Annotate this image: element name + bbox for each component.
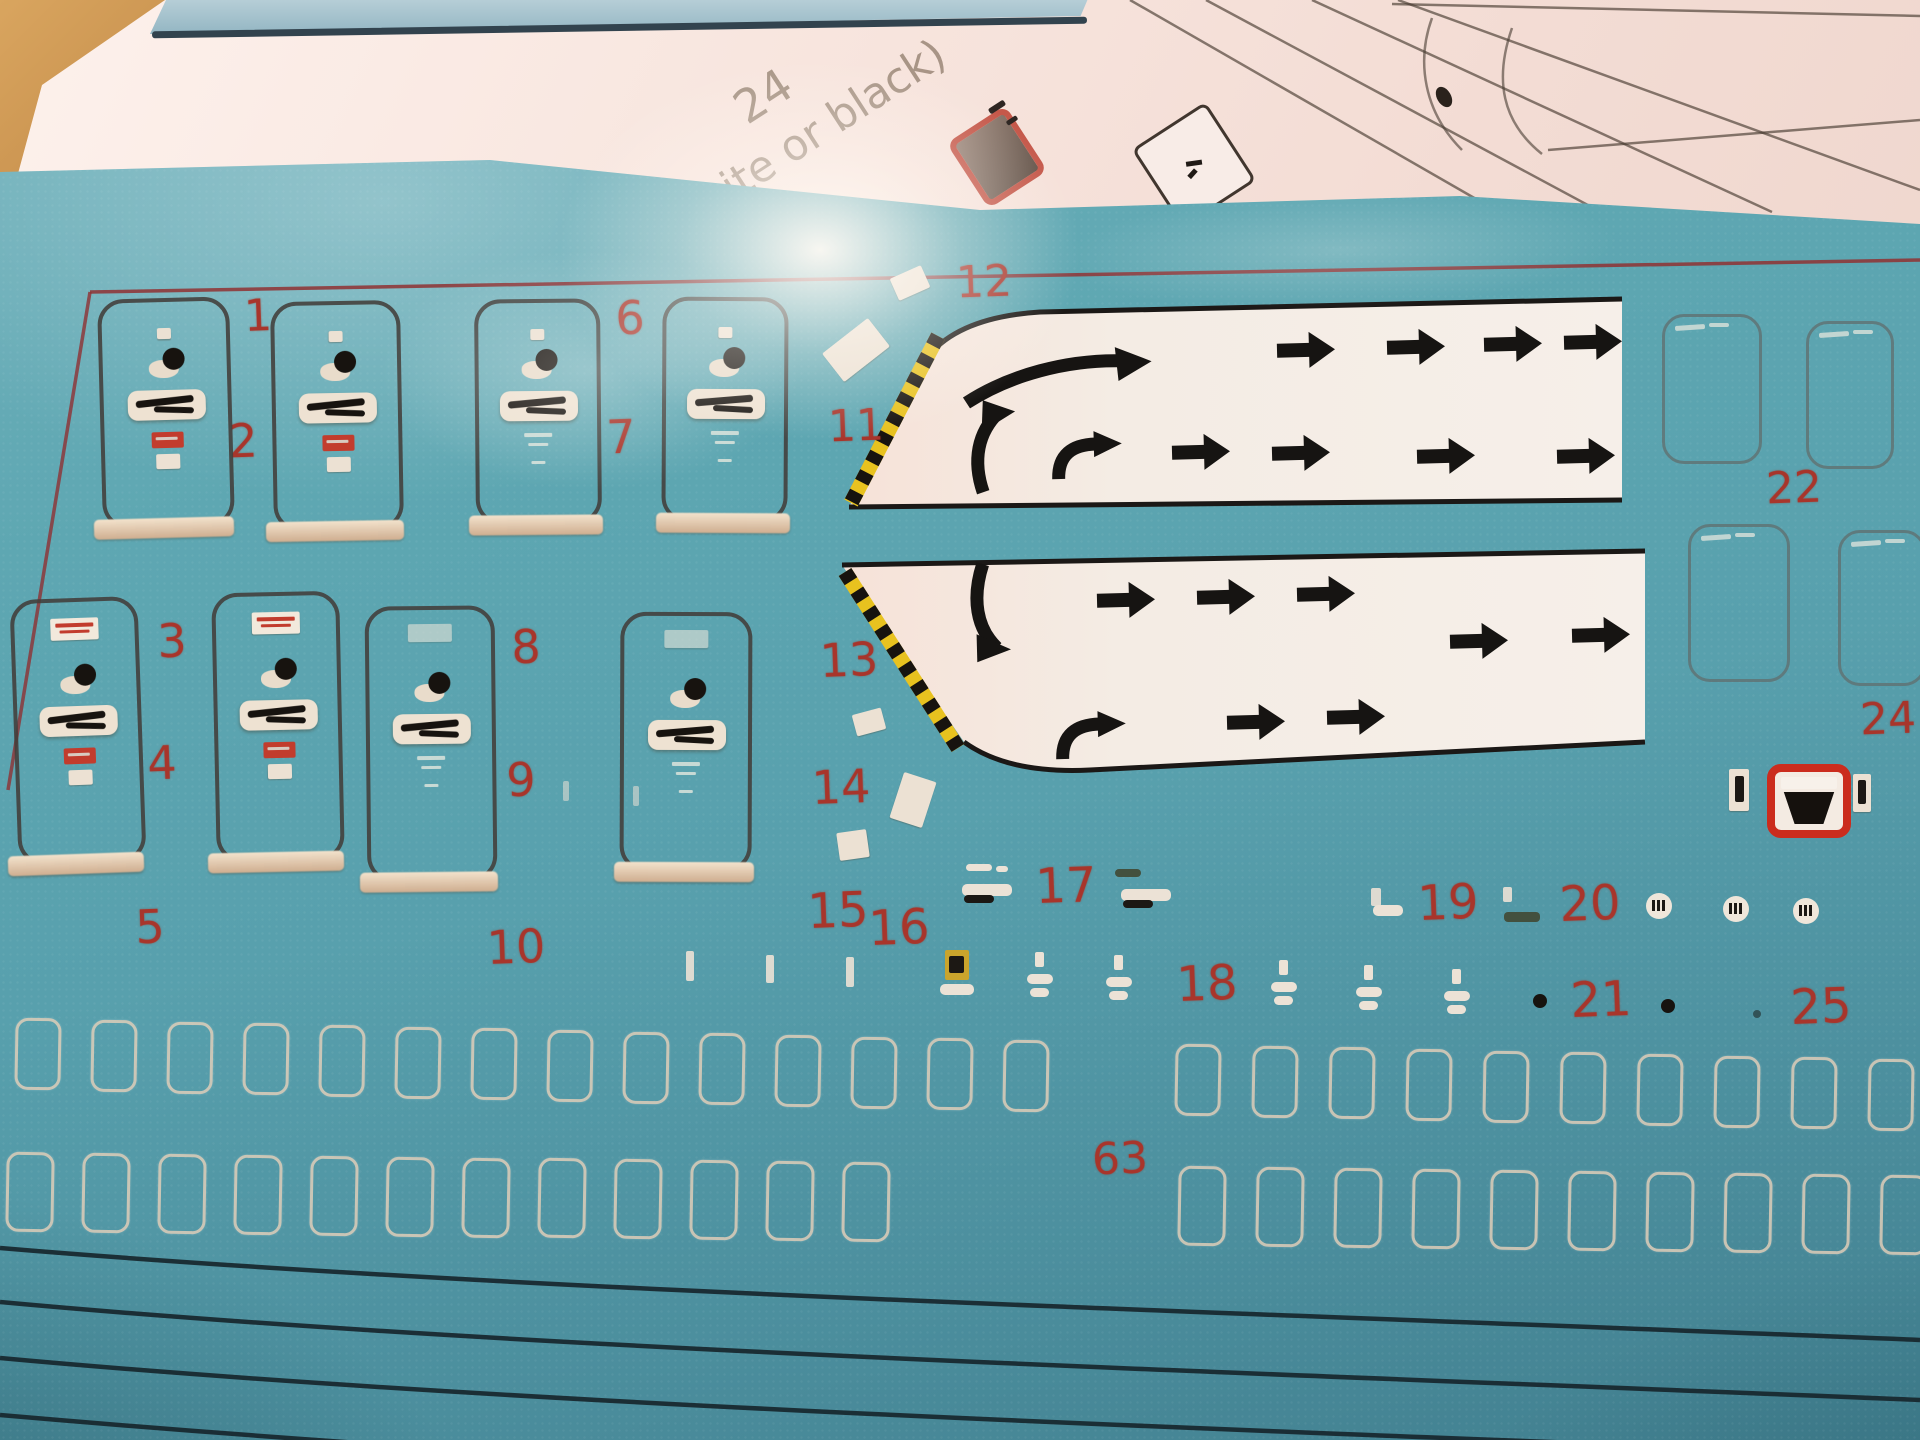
door-window-dot xyxy=(723,347,745,369)
window-outline-decal xyxy=(1645,1171,1694,1252)
placard-hatch xyxy=(1657,900,1660,911)
part-number: 18 xyxy=(1176,955,1239,1013)
part-number: 19 xyxy=(1417,874,1480,932)
label-text-line xyxy=(261,624,291,628)
window-outline-decal xyxy=(850,1036,897,1109)
decal-door-outline xyxy=(97,296,235,529)
window-outline-decal xyxy=(622,1031,669,1104)
window-outline-decal xyxy=(1177,1166,1226,1247)
window-outline-decal xyxy=(1255,1167,1304,1248)
door-handle-art xyxy=(299,392,378,423)
window-outline-decal xyxy=(1489,1169,1538,1250)
chip-line xyxy=(326,440,348,443)
stencil-bar xyxy=(1447,1005,1466,1014)
label-text-line xyxy=(55,622,93,627)
label-text-line xyxy=(257,617,295,622)
window-outline-decal xyxy=(1411,1169,1460,1250)
white-instruction-chip xyxy=(68,770,93,786)
decal-door-outline xyxy=(620,612,753,872)
nav-light-dot-decal xyxy=(1753,1010,1761,1018)
escape-slide-band-13 xyxy=(842,551,1645,770)
door-handle-art xyxy=(648,720,726,750)
window-outline-decal xyxy=(841,1162,890,1243)
window-outline-decal xyxy=(394,1026,441,1099)
placard-hatch xyxy=(1662,900,1665,911)
pitot-decal-group xyxy=(962,880,1012,906)
window-outline-decal xyxy=(1174,1043,1221,1116)
faint-text-line xyxy=(528,443,548,446)
window-outline-decal xyxy=(1801,1173,1850,1254)
window-outline-decal xyxy=(242,1023,289,1096)
window-outline-decal xyxy=(1636,1054,1683,1127)
window-outline-decal xyxy=(765,1161,814,1242)
handle-bar xyxy=(419,730,459,738)
decal-door-outline xyxy=(661,297,788,524)
red-instruction-chip xyxy=(322,435,354,452)
door-top-mark xyxy=(1709,323,1729,327)
nav-light-dot-decal xyxy=(1533,994,1547,1008)
window-outline-decal xyxy=(546,1030,593,1103)
door-handle-art xyxy=(687,389,765,419)
fuselage-outline-line xyxy=(1398,0,1920,190)
label-text-line xyxy=(59,630,89,634)
part-number: 8 xyxy=(510,620,541,675)
window-outline-decal xyxy=(81,1153,130,1234)
faint-text-line xyxy=(718,459,732,462)
tick-mark-decal xyxy=(846,957,854,987)
door-top-mark xyxy=(1735,533,1755,537)
faint-text-line xyxy=(672,762,700,766)
part-number: 21 xyxy=(1570,971,1633,1029)
window-outline-decal xyxy=(1002,1040,1049,1113)
handle-bar xyxy=(674,736,714,744)
window-outline-decal xyxy=(1723,1172,1772,1253)
decal24-side-tick xyxy=(1729,769,1749,811)
stencil-bar xyxy=(1030,988,1049,997)
door-window-dot xyxy=(684,678,706,700)
white-instruction-chip xyxy=(156,454,180,470)
handle-bar xyxy=(154,406,194,413)
part-number: 25 xyxy=(1790,978,1853,1036)
window-outline-decal xyxy=(1333,1168,1382,1249)
tiny-arrow-icon xyxy=(1186,160,1203,167)
door-handle-art xyxy=(239,699,318,731)
window-outline-decal xyxy=(157,1153,206,1234)
placard-base xyxy=(940,984,974,995)
tick-mark-decal xyxy=(766,955,774,983)
olive-dash xyxy=(1115,869,1141,877)
door-sill-decal xyxy=(266,520,404,542)
stencil-bar xyxy=(1359,1001,1378,1010)
white-instruction-chip xyxy=(327,457,351,472)
pitot-decal-group xyxy=(1121,885,1171,911)
faint-text-line xyxy=(417,756,445,760)
black-underbar xyxy=(1123,900,1153,908)
emergency-exit-label xyxy=(252,612,300,635)
window-outline-decal xyxy=(5,1152,54,1233)
door-top-mark xyxy=(1851,540,1881,547)
handle-bar xyxy=(713,405,753,413)
door-top-mark xyxy=(1885,539,1905,543)
decal-door-outline xyxy=(9,596,146,866)
small-stencil-decal xyxy=(1027,952,1053,1000)
placard-hatch xyxy=(1652,900,1655,911)
tick-mark-decal xyxy=(633,786,639,806)
part-number: 20 xyxy=(1559,875,1622,933)
door-sill-decal xyxy=(656,513,790,534)
door-sill-decal xyxy=(360,871,498,892)
window-outline-decal xyxy=(1482,1050,1529,1123)
part-number: 16 xyxy=(868,899,931,957)
tick-mark-decal xyxy=(686,951,694,981)
door-sill-decal xyxy=(208,851,344,874)
faint-text-line xyxy=(679,790,693,793)
door-sill-decal xyxy=(94,516,234,540)
nav-light-dot-decal xyxy=(1661,999,1675,1013)
placard-hatch xyxy=(1809,905,1812,916)
stencil-bar xyxy=(1356,987,1382,997)
handle-bar xyxy=(325,409,365,416)
window-dot xyxy=(1432,84,1455,110)
tick-bar xyxy=(1858,780,1866,804)
placard-hatch xyxy=(1804,905,1807,916)
tick-mark-decal xyxy=(1371,888,1381,906)
window-outline-decal xyxy=(318,1025,365,1098)
part-number: 10 xyxy=(486,919,546,975)
round-placard-decal xyxy=(1646,893,1672,919)
stencil-tick xyxy=(1452,969,1461,984)
decal-door-outline xyxy=(365,605,498,882)
door-window-dot xyxy=(535,349,557,371)
loose-white-chip xyxy=(836,829,870,861)
door-sill-decal xyxy=(469,514,603,535)
part-number: 15 xyxy=(807,882,870,940)
window-outline-decal xyxy=(1328,1047,1375,1120)
part-number: 3 xyxy=(156,614,187,669)
window-outline-decal xyxy=(1405,1049,1452,1122)
part-number: 11 xyxy=(827,400,885,453)
door-handle-art xyxy=(393,714,471,745)
decal-door-outline xyxy=(1838,530,1920,686)
white-instruction-chip xyxy=(268,764,292,779)
door-placard xyxy=(408,624,452,642)
door-handle-art xyxy=(39,705,118,738)
tick-bar xyxy=(1735,776,1744,802)
faint-text-line xyxy=(524,433,552,437)
part-number: 5 xyxy=(134,900,165,955)
window-outline-decal xyxy=(1867,1059,1914,1132)
part-number: 17 xyxy=(1035,857,1098,915)
emergency-exit-label xyxy=(50,617,99,641)
chip-line xyxy=(156,437,178,441)
door-sill-decal xyxy=(614,862,754,882)
handle-bar xyxy=(266,716,306,723)
decal24-side-tick xyxy=(1853,774,1871,812)
red-instruction-chip xyxy=(263,742,295,759)
placard-hatch xyxy=(1739,903,1742,914)
door-chip xyxy=(718,327,732,338)
window-outline-decal xyxy=(774,1035,821,1108)
stencil-bar xyxy=(1027,974,1053,984)
handle-bar xyxy=(526,407,566,415)
window-outline-decal xyxy=(1567,1170,1616,1251)
door-handle-art xyxy=(500,391,578,422)
small-stencil-decal xyxy=(1271,960,1297,1008)
window-outline-decal xyxy=(1559,1052,1606,1125)
door-window-dot xyxy=(428,672,450,694)
faint-text-line xyxy=(424,784,438,787)
part-number: 24 xyxy=(1859,693,1917,746)
faint-text-line xyxy=(531,461,545,464)
tick-mark-decal xyxy=(563,781,569,801)
window-outline-decal xyxy=(233,1154,282,1235)
placard-hatch xyxy=(1734,903,1737,914)
door-top-mark xyxy=(1675,324,1705,331)
door-chip xyxy=(530,329,544,340)
faint-text-line xyxy=(711,431,739,435)
window-outline-decal xyxy=(309,1155,358,1236)
decal-sheet: 1234567891011121314151617181920212224256… xyxy=(0,0,1920,1440)
window-outline-decal xyxy=(1790,1057,1837,1130)
faint-text-line xyxy=(715,441,735,444)
small-dash xyxy=(996,866,1008,872)
cheatline-stripe xyxy=(0,1358,1920,1440)
door-window-dot xyxy=(334,351,356,373)
stencil-bar xyxy=(1109,991,1128,1000)
door-handle-art xyxy=(127,389,206,421)
window-outline-decal xyxy=(90,1020,137,1093)
small-dash xyxy=(966,864,992,871)
window-outline-decal xyxy=(926,1038,973,1111)
tick-mark-decal xyxy=(1503,887,1512,902)
yellow-placard-decal xyxy=(940,950,974,996)
door-placard xyxy=(664,630,708,648)
window-outline-decal xyxy=(166,1021,213,1094)
part-number: 6 xyxy=(614,291,645,346)
window-outline-decal xyxy=(537,1158,586,1239)
chip-line xyxy=(68,753,90,757)
tiny-arrow-icon xyxy=(1187,168,1197,179)
stencil-bar xyxy=(1271,982,1297,992)
part-number: 22 xyxy=(1765,462,1823,515)
window-outline-decal xyxy=(14,1018,61,1091)
small-stencil-decal xyxy=(1444,969,1470,1017)
window-outline-decal xyxy=(1879,1174,1920,1255)
window-outline-decal xyxy=(613,1159,662,1240)
fuselage-outline-line xyxy=(1206,0,1625,225)
part-number: 63 xyxy=(1091,1133,1149,1186)
window-outline-decal xyxy=(385,1156,434,1237)
fuselage-outline-line xyxy=(1392,4,1920,16)
window-outline-decal xyxy=(1251,1045,1298,1118)
placard-hatch xyxy=(1729,903,1732,914)
handle-bar xyxy=(66,722,106,729)
decal-door-outline xyxy=(1662,314,1762,464)
part-number: 9 xyxy=(505,753,536,808)
decal-door-outline xyxy=(270,300,404,532)
door-window-dot xyxy=(275,658,297,680)
stencil-tick xyxy=(1035,952,1044,967)
part-number: 14 xyxy=(811,759,871,815)
stencil-tick xyxy=(1364,965,1373,980)
small-stencil-decal xyxy=(1356,965,1382,1013)
part-number: 7 xyxy=(605,410,636,465)
stencil-bar xyxy=(1444,991,1470,1001)
window-outline-decal xyxy=(461,1157,510,1238)
placard-hatch xyxy=(1799,905,1802,916)
door-top-mark xyxy=(1701,534,1731,541)
cheatline-stripe xyxy=(0,1302,1920,1400)
cheatline-stripe xyxy=(0,1415,860,1440)
nose-outline-curve xyxy=(1424,18,1462,150)
small-dash-decal xyxy=(1373,905,1403,916)
door-top-mark xyxy=(1819,331,1849,338)
faint-text-line xyxy=(421,766,441,769)
round-placard-decal xyxy=(1793,898,1819,924)
window-outline-decal xyxy=(698,1033,745,1106)
window-outline-decal xyxy=(689,1160,738,1241)
black-underbar xyxy=(964,895,994,903)
door-chip xyxy=(157,328,171,339)
door-top-mark xyxy=(1853,330,1873,334)
small-dash-decal xyxy=(1504,912,1540,922)
part-number: 4 xyxy=(146,736,177,791)
stencil-tick xyxy=(1114,955,1123,970)
red-instruction-chip xyxy=(64,747,97,764)
decal-door-outline xyxy=(211,591,345,864)
stencil-bar xyxy=(1106,977,1132,987)
photo-decal-sheet: { "scene": { "teal": "#58a0ad", "paper":… xyxy=(0,0,1920,1440)
stencil-tick xyxy=(1279,960,1288,975)
stencil-bar xyxy=(1274,996,1293,1005)
decal-door-outline xyxy=(474,298,602,525)
door-chip xyxy=(329,331,343,342)
placard-figure xyxy=(949,956,964,973)
decal24-topbar xyxy=(1781,777,1837,789)
apu-exhaust-decal xyxy=(1767,764,1851,838)
decal-door-outline xyxy=(1688,524,1790,682)
window-outline-decal xyxy=(1713,1055,1760,1128)
part-number: 13 xyxy=(819,632,879,688)
part-number: 1 xyxy=(243,290,273,342)
faint-text-line xyxy=(676,772,696,775)
door-window-dot xyxy=(74,663,97,686)
small-stencil-decal xyxy=(1106,955,1132,1003)
part-number: 12 xyxy=(955,256,1013,309)
decal-door-outline xyxy=(1806,321,1894,469)
red-instruction-chip xyxy=(152,432,184,449)
round-placard-decal xyxy=(1723,896,1749,922)
chip-line xyxy=(267,747,289,750)
door-window-dot xyxy=(162,347,185,370)
window-outline-decal xyxy=(470,1028,517,1101)
